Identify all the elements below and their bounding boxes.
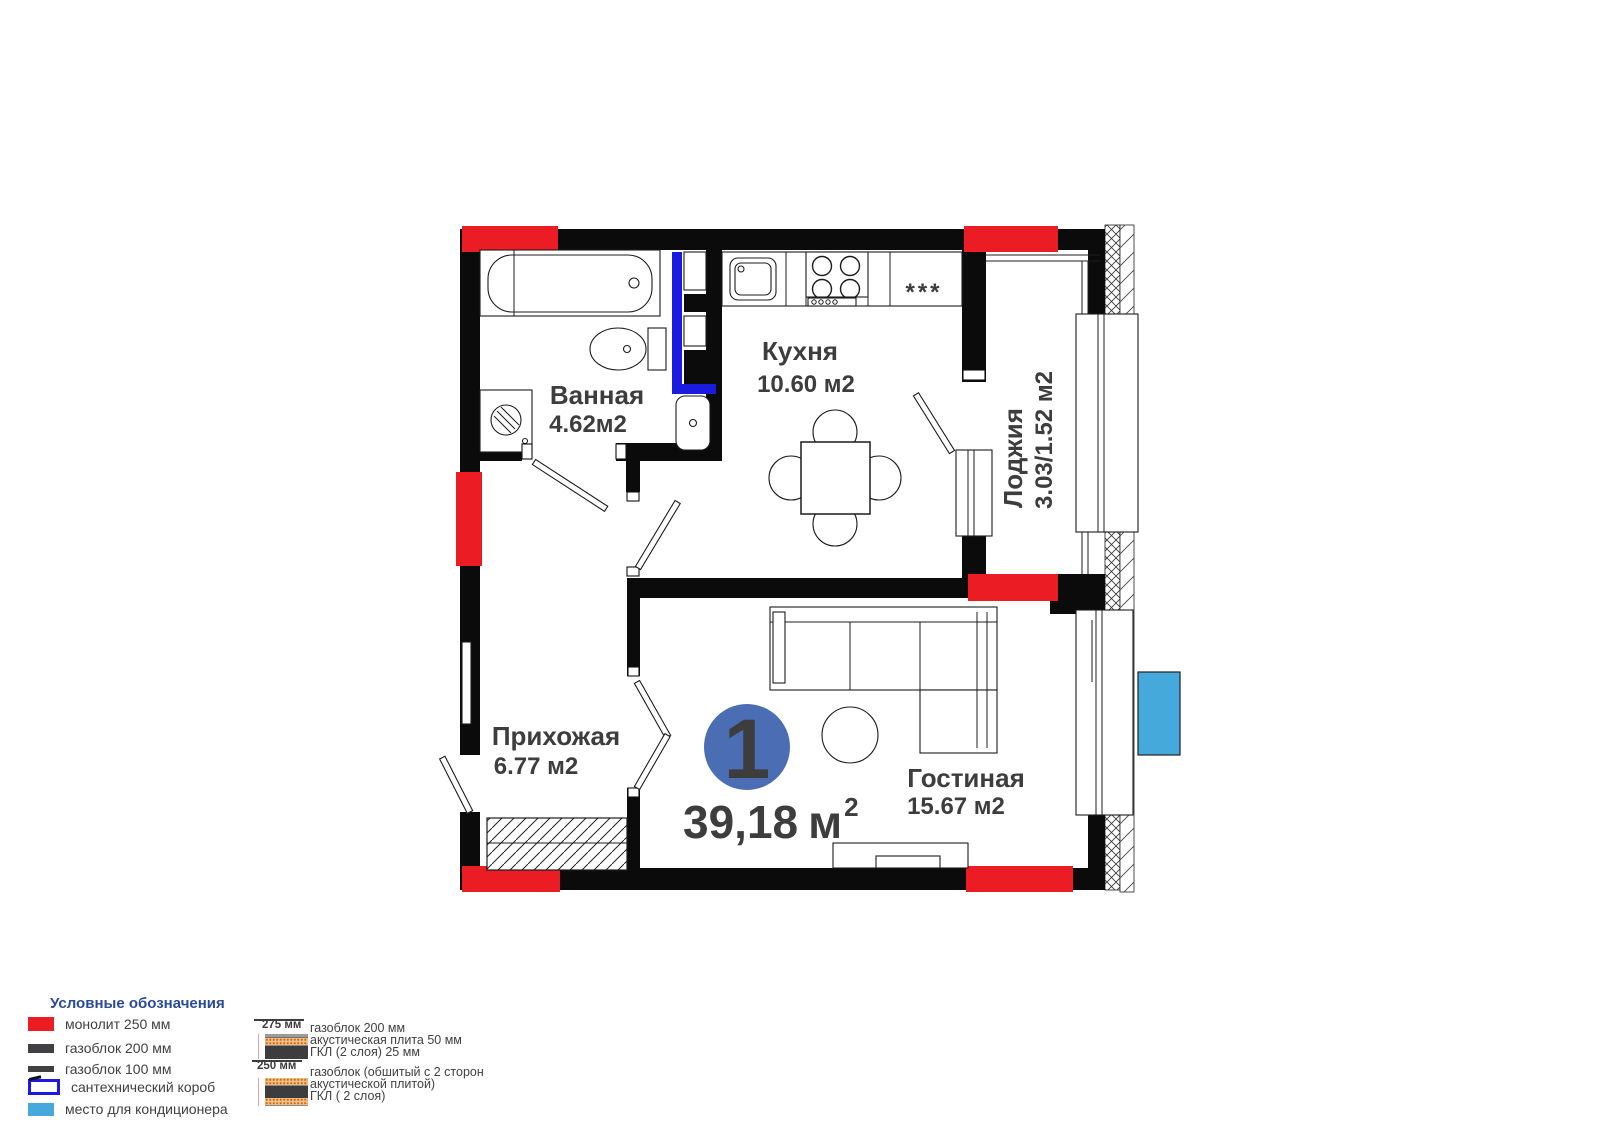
balcony-door	[913, 393, 954, 454]
wall-section-250-text: газоблок (обшитый с 2 сторон акустическо…	[310, 1067, 484, 1102]
wall-section-275-bracket	[258, 1034, 264, 1059]
acoustic-layer-top	[265, 1078, 308, 1086]
legend-item-gasblock-100: газоблок 100 мм	[28, 1061, 172, 1077]
kitchen-door	[635, 500, 680, 569]
legend-item-monolith: монолит 250 мм	[28, 1016, 170, 1032]
living-room-area: 15.67 м2	[907, 793, 1005, 820]
gasblock-layer	[265, 1086, 308, 1098]
bathroom-area: 4.62м2	[549, 411, 627, 438]
toilet	[590, 328, 666, 370]
sanitary-duct-swatch	[28, 1079, 60, 1095]
gasblock-200-swatch	[28, 1044, 54, 1053]
entry-door	[440, 756, 473, 813]
fridge-symbol: ***	[905, 279, 942, 306]
legend: Условные обозначения монолит 250 мм газо…	[0, 966, 540, 1131]
kitchen-fixtures: ***	[722, 252, 962, 546]
wall-section-275-line	[254, 1019, 304, 1021]
unit-badge: 1	[704, 702, 790, 796]
monolith-swatch	[28, 1017, 54, 1031]
floor-plan-drawing: *** Ванная 4.62м2 Кухня 10.60 м2 Л	[0, 0, 1600, 1131]
wardrobe	[487, 818, 627, 870]
floor-plan-page: *** Ванная 4.62м2 Кухня 10.60 м2 Л	[0, 0, 1600, 1131]
wall-section-250-line	[252, 1060, 302, 1062]
loggia-window	[1076, 314, 1138, 532]
acoustic-layer	[265, 1038, 308, 1046]
wall-section-275-swatch	[265, 1034, 308, 1059]
kitchen-counter: ***	[722, 252, 962, 306]
acoustic-layer-bottom	[265, 1098, 308, 1106]
loggia-area: 3.03/1.52 м2	[1031, 371, 1058, 509]
living-room-door-leaf-a	[634, 681, 670, 739]
ac-spot-swatch	[28, 1103, 54, 1116]
kitchen-table	[769, 410, 901, 546]
bathroom-label: Ванная	[550, 380, 644, 410]
legend-item-sanitary-duct: сантехнический короб	[28, 1079, 215, 1095]
gasblock-layer	[265, 1046, 308, 1059]
hallway-area: 6.77 м2	[494, 753, 578, 780]
ac-unit-spot	[1138, 672, 1180, 755]
living-room-window	[1076, 610, 1133, 815]
washing-machine	[480, 390, 532, 452]
gasblock-100-swatch	[28, 1066, 54, 1072]
living-room-door-leaf-b	[634, 734, 670, 790]
wall-section-250-bracket	[258, 1078, 264, 1106]
tv-stand	[833, 843, 968, 868]
living-room-label: Гостиная	[907, 763, 1025, 793]
legend-title: Условные обозначения	[50, 995, 225, 1012]
loggia-label: Лоджия	[998, 408, 1028, 508]
kitchen-area: 10.60 м2	[757, 371, 855, 398]
legend-item-gasblock-200: газоблок 200 мм	[28, 1040, 172, 1056]
unit-number: 1	[724, 702, 771, 796]
bathroom-sink	[676, 396, 710, 450]
sofa	[770, 607, 997, 753]
kitchen-label: Кухня	[762, 336, 838, 366]
wall-section-275-text: газоблок 200 мм акустическая плита 50 мм…	[310, 1023, 462, 1058]
bathtub	[480, 250, 660, 316]
legend-item-ac-spot: место для кондиционера	[28, 1101, 228, 1117]
wall-section-250-swatch	[265, 1078, 308, 1106]
vent-shaft	[684, 252, 706, 388]
coffee-table	[822, 707, 878, 763]
bathroom-door	[532, 459, 607, 511]
hallway-label: Прихожая	[492, 721, 620, 751]
wall-niche	[462, 642, 471, 724]
total-area: 39,18м2	[683, 792, 859, 848]
